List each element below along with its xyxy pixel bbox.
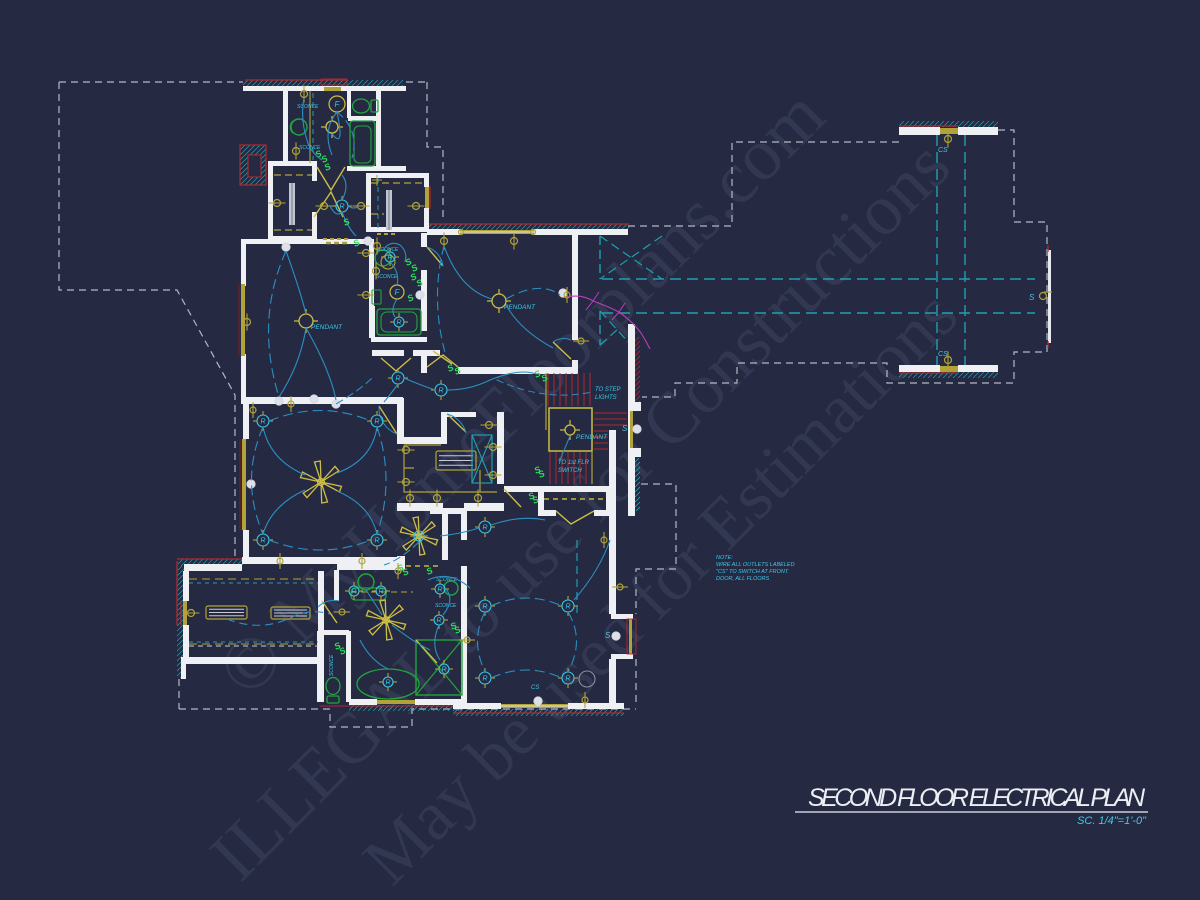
svg-text:R: R <box>416 534 421 541</box>
svg-text:SCONCE: SCONCE <box>376 274 398 280</box>
svg-text:R: R <box>482 604 487 611</box>
svg-text:LIGHTS: LIGHTS <box>595 395 617 401</box>
svg-text:SWITCH: SWITCH <box>558 468 582 474</box>
svg-text:SCONCE: SCONCE <box>329 654 335 676</box>
svg-text:CS: CS <box>531 685 539 691</box>
svg-text:PENDANT: PENDANT <box>311 324 343 331</box>
svg-text:SECOND FLOOR ELECTRICAL PLAN: SECOND FLOOR ELECTRICAL PLAN <box>808 784 1146 812</box>
svg-text:R: R <box>482 676 487 683</box>
svg-text:R: R <box>374 538 379 545</box>
svg-text:R: R <box>385 680 390 687</box>
svg-text:R: R <box>436 618 441 625</box>
svg-text:S: S <box>622 424 628 433</box>
svg-text:SCONCE: SCONCE <box>297 104 319 110</box>
svg-text:TO 1st FLR: TO 1st FLR <box>558 460 590 466</box>
svg-text:CS: CS <box>938 147 948 154</box>
svg-text:R: R <box>378 589 383 596</box>
svg-text:TO STEP: TO STEP <box>595 387 621 393</box>
svg-text:R: R <box>339 204 344 211</box>
svg-text:R: R <box>438 388 443 395</box>
svg-text:SCONCE: SCONCE <box>435 603 457 609</box>
svg-text:"CS" TO SWITCH AT FRONT: "CS" TO SWITCH AT FRONT <box>716 569 789 575</box>
svg-text:WIRE ALL OUTLETS LABELED: WIRE ALL OUTLETS LABELED <box>716 562 795 568</box>
svg-text:PENDANT: PENDANT <box>576 434 608 441</box>
svg-text:R: R <box>482 525 487 532</box>
svg-text:CS: CS <box>938 351 948 358</box>
svg-text:R: R <box>351 589 356 596</box>
svg-text:R: R <box>260 419 265 426</box>
svg-text:R: R <box>395 376 400 383</box>
svg-text:R: R <box>437 587 442 594</box>
svg-text:S: S <box>605 631 611 640</box>
svg-text:R: R <box>387 255 392 262</box>
svg-text:R: R <box>565 676 570 683</box>
svg-text:R: R <box>374 419 379 426</box>
svg-text:R: R <box>396 320 401 327</box>
svg-text:SC. 1/4"=1'-0": SC. 1/4"=1'-0" <box>1077 815 1147 827</box>
svg-text:S: S <box>1029 293 1035 302</box>
svg-text:NOTE:: NOTE: <box>716 555 733 561</box>
svg-text:DOOR, ALL FLOORS: DOOR, ALL FLOORS <box>716 576 770 582</box>
svg-text:R: R <box>441 667 446 674</box>
svg-text:R: R <box>565 604 570 611</box>
svg-text:R: R <box>260 538 265 545</box>
